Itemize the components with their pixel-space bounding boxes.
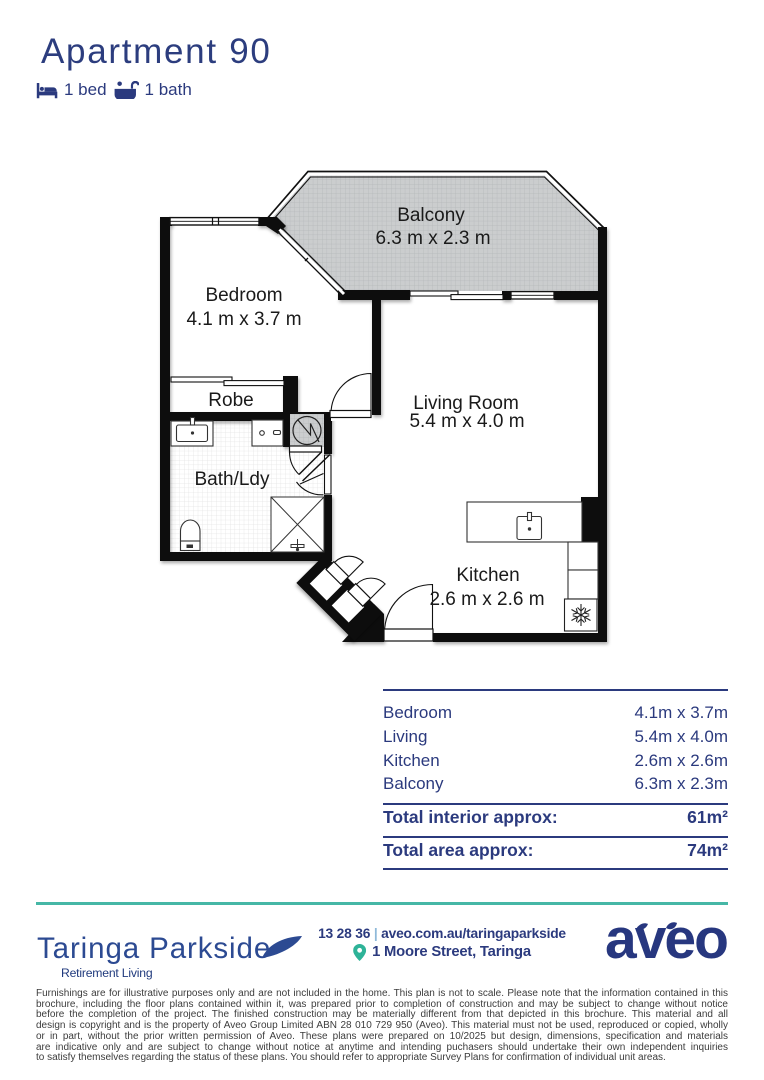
svg-text:Bath/Ldy: Bath/Ldy: [195, 469, 270, 490]
svg-text:Kitchen: Kitchen: [456, 565, 519, 586]
svg-text:Balcony: Balcony: [397, 205, 465, 226]
svg-text:2.6 m x 2.6 m: 2.6 m x 2.6 m: [429, 589, 544, 610]
svg-text:4.1 m x 3.7 m: 4.1 m x 3.7 m: [186, 309, 301, 330]
svg-text:Robe: Robe: [208, 390, 253, 411]
svg-text:Bedroom: Bedroom: [205, 285, 282, 306]
svg-text:5.4 m x 4.0 m: 5.4 m x 4.0 m: [409, 411, 524, 432]
svg-text:6.3 m x 2.3 m: 6.3 m x 2.3 m: [375, 228, 490, 249]
